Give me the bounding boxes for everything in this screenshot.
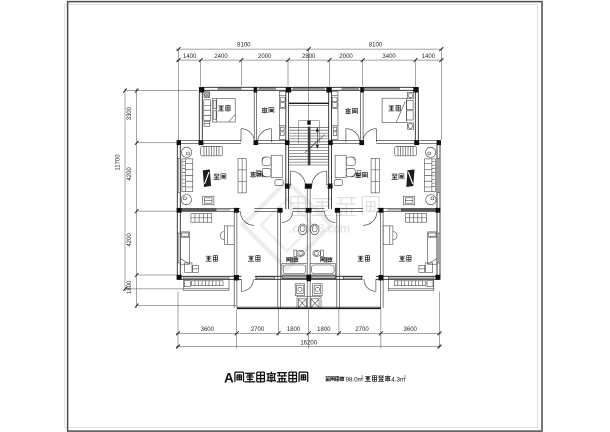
svg-text:2700: 2700 <box>251 327 265 333</box>
svg-text:16200: 16200 <box>300 340 317 346</box>
svg-text:A: A <box>224 371 234 386</box>
svg-text:4200: 4200 <box>127 167 133 181</box>
svg-text:11700: 11700 <box>115 154 121 171</box>
svg-text:2: 2 <box>404 375 407 380</box>
svg-text:1800: 1800 <box>127 280 133 294</box>
svg-text:1800: 1800 <box>287 327 301 333</box>
svg-text:4200: 4200 <box>127 233 133 247</box>
svg-text:3600: 3600 <box>404 327 418 333</box>
svg-text:2000: 2000 <box>258 54 272 60</box>
svg-text:2700: 2700 <box>355 327 369 333</box>
svg-text:2800: 2800 <box>302 54 316 60</box>
svg-text:1400: 1400 <box>422 54 436 60</box>
svg-text:1800: 1800 <box>317 327 331 333</box>
svg-text:8100: 8100 <box>237 42 251 48</box>
svg-text:2: 2 <box>361 375 364 380</box>
svg-text:8100: 8100 <box>369 42 383 48</box>
svg-text:2400: 2400 <box>214 54 228 60</box>
svg-text:3300: 3300 <box>127 106 133 120</box>
svg-text:1400: 1400 <box>183 54 197 60</box>
svg-text:3600: 3600 <box>201 327 215 333</box>
svg-text:2000: 2000 <box>339 54 353 60</box>
svg-text:3400: 3400 <box>382 54 396 60</box>
